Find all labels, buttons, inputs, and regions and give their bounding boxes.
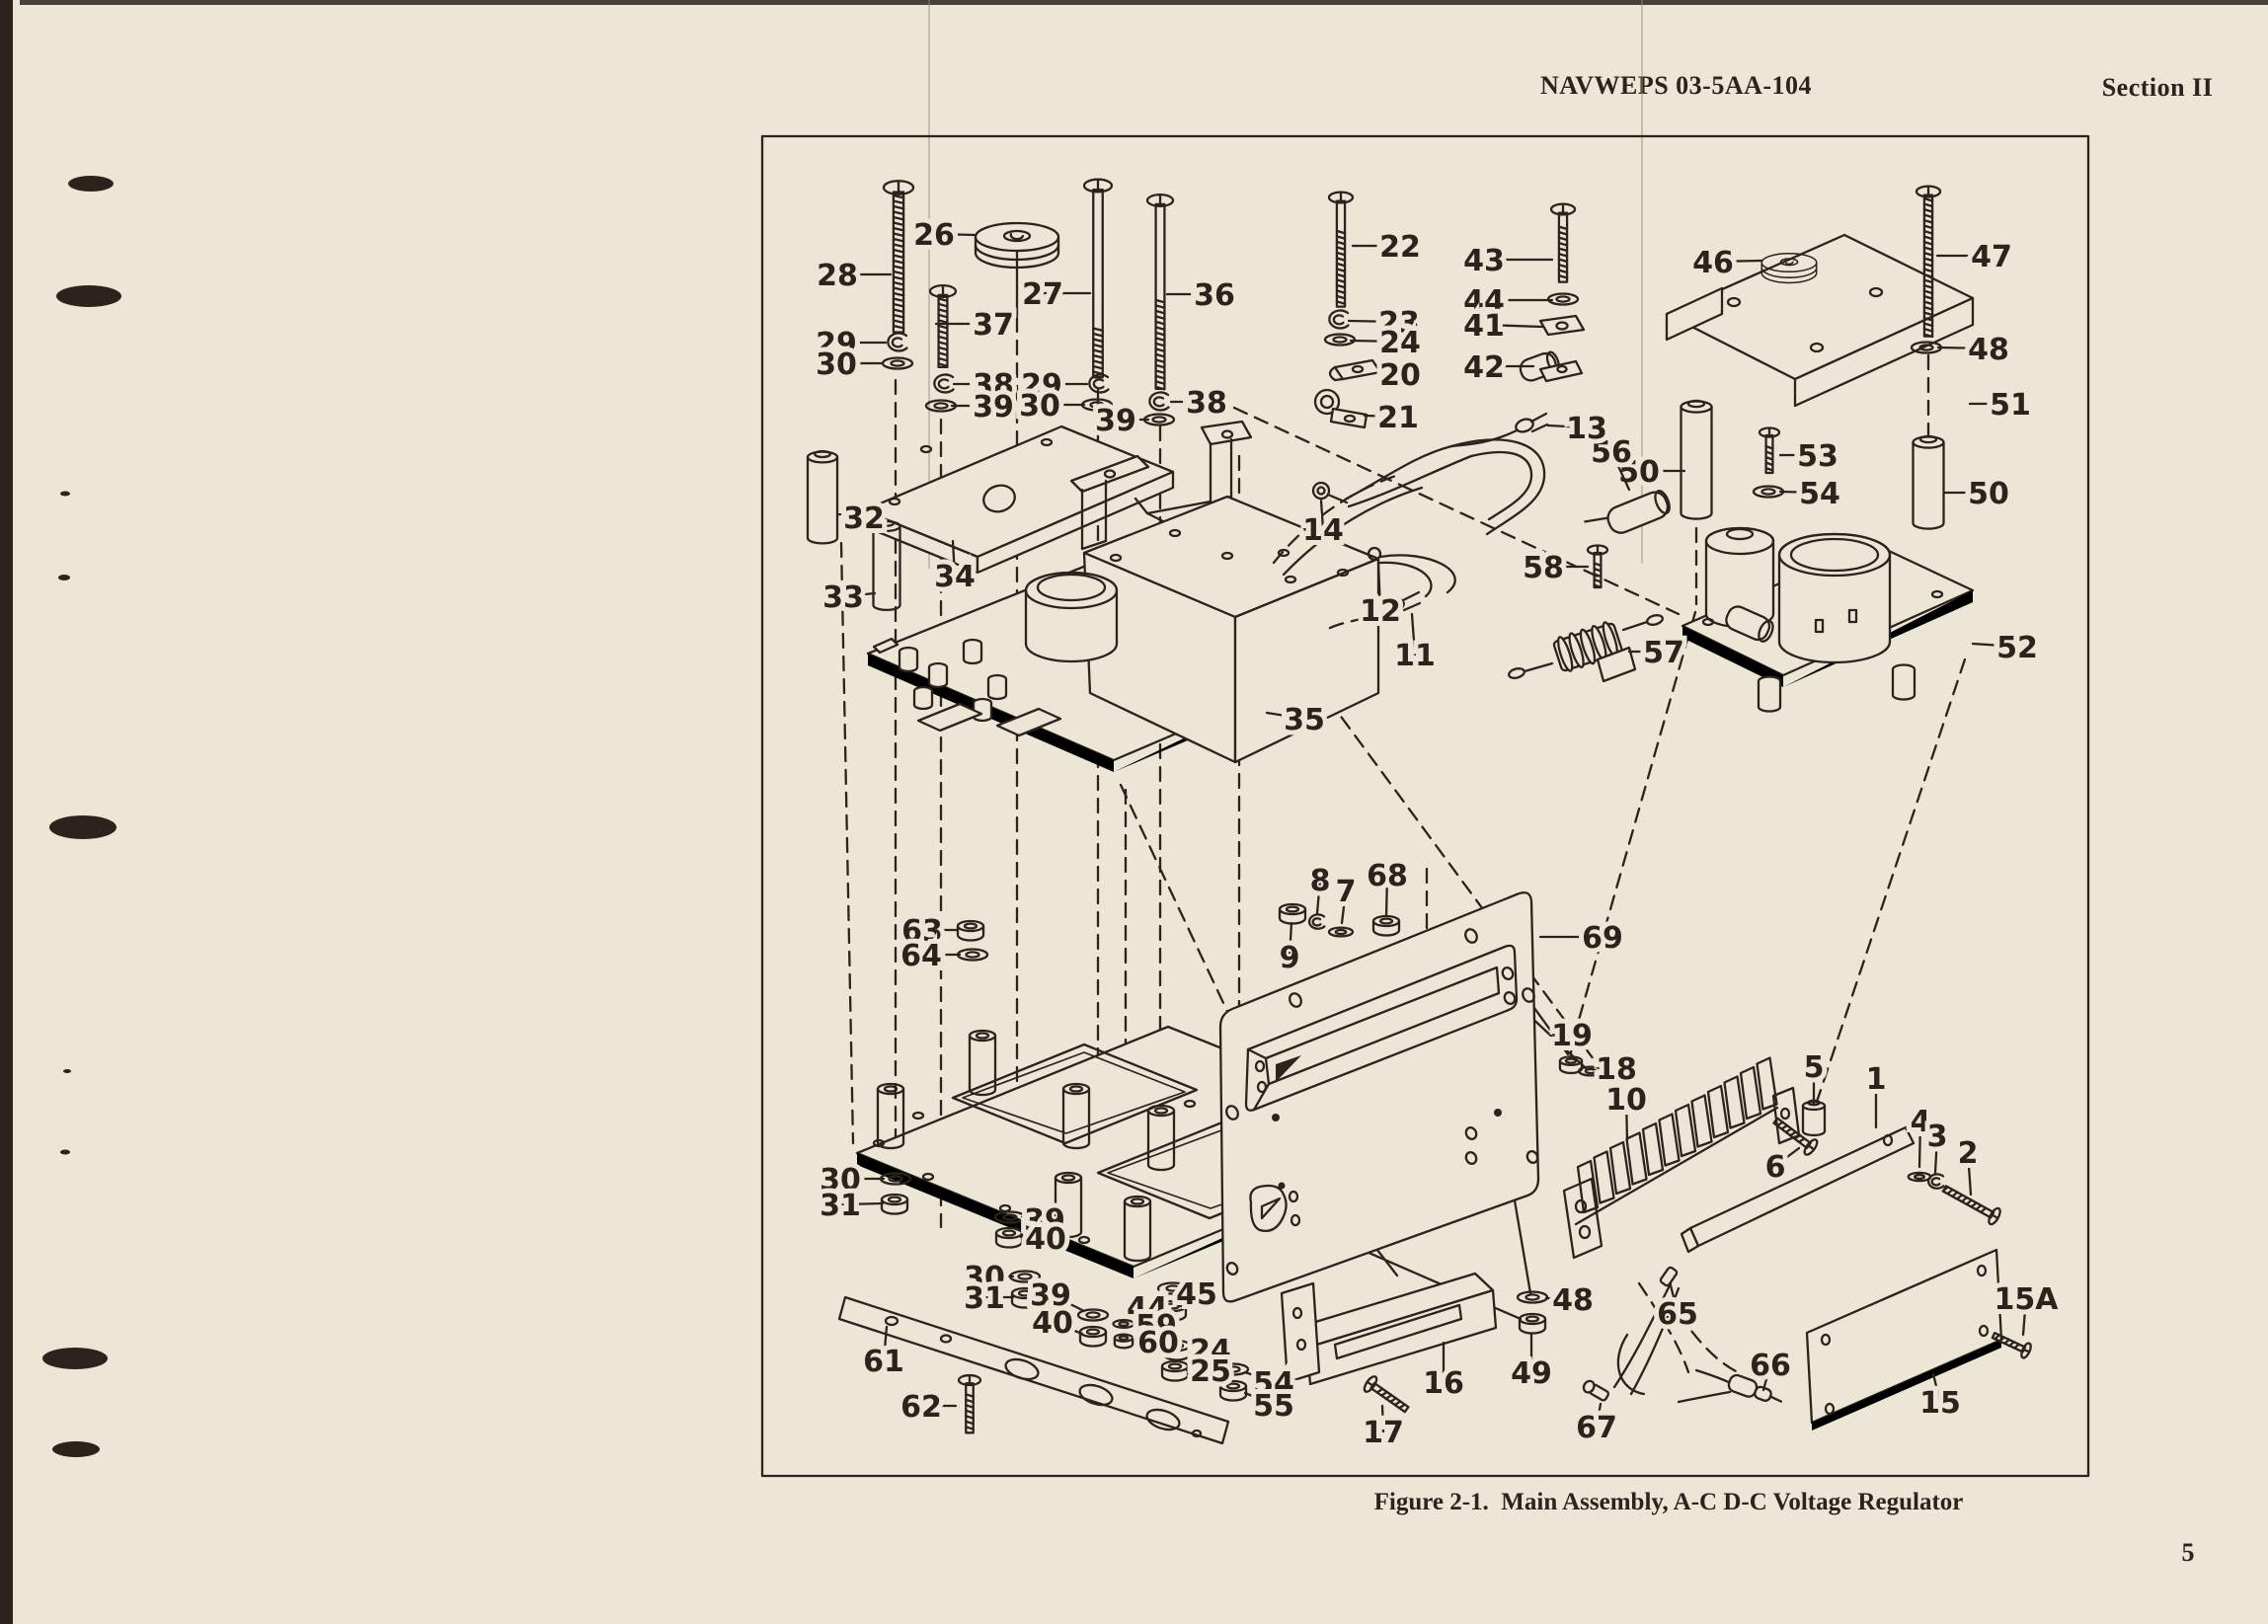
cover-plate-15 — [1807, 1250, 2001, 1431]
callout-label: 12 — [1360, 594, 1401, 629]
callout-label: 14 — [1302, 513, 1344, 548]
callout-label: 57 — [1643, 636, 1684, 670]
washer — [1909, 1173, 1931, 1181]
retaining-ring — [888, 333, 906, 350]
machine-screw — [1760, 428, 1779, 474]
callout-label: 21 — [1377, 401, 1419, 435]
callout-40: 40 — [1032, 1306, 1082, 1341]
washer — [1754, 487, 1783, 498]
callout-label: 20 — [1379, 358, 1421, 393]
callout-label: 5 — [1804, 1050, 1825, 1085]
machine-screw — [1363, 1374, 1412, 1417]
callout-label: 64 — [900, 939, 942, 973]
callout-label: 40 — [1032, 1306, 1073, 1341]
angle-bracket-1 — [1681, 1127, 1914, 1252]
callout-30: 30 — [816, 348, 883, 382]
callout-54: 54 — [1780, 477, 1840, 511]
callout-label: 30 — [816, 348, 857, 382]
callout-label: 1 — [1866, 1062, 1887, 1097]
callout-18: 18 — [1596, 1052, 1637, 1087]
spacer — [808, 451, 837, 543]
callout-13: 13 — [1548, 412, 1607, 446]
callout-label: 13 — [1566, 412, 1607, 446]
callout-40: 40 — [1021, 1222, 1066, 1257]
callout-48: 48 — [1546, 1283, 1594, 1318]
callout-38: 38 — [1171, 386, 1227, 421]
wiring-harness-lower — [1582, 1267, 1784, 1408]
callout-label: 32 — [843, 502, 885, 536]
nut — [1080, 1327, 1106, 1347]
washer — [1518, 1292, 1547, 1303]
callout-label: 33 — [822, 580, 864, 615]
clamp-21 — [1315, 390, 1367, 427]
callout-31: 31 — [820, 1189, 883, 1223]
callout-label: 45 — [1176, 1277, 1217, 1312]
callout-label: 35 — [1284, 703, 1325, 737]
callout-label: 18 — [1596, 1052, 1637, 1087]
callout-label: 36 — [1194, 278, 1235, 313]
callout-14: 14 — [1302, 501, 1344, 548]
callout-57: 57 — [1629, 636, 1684, 670]
callout-47: 47 — [1937, 240, 2012, 274]
callout-7: 7 — [1336, 875, 1357, 923]
relay-assembly-52 — [1682, 528, 1973, 712]
callout-label: 26 — [913, 218, 955, 253]
callout-label: 69 — [1582, 921, 1623, 956]
nut — [1560, 1056, 1582, 1073]
callout-label: 66 — [1750, 1349, 1791, 1383]
callout-label: 60 — [1137, 1326, 1179, 1360]
callout-label: 61 — [863, 1345, 904, 1379]
callout-62: 62 — [900, 1390, 956, 1425]
callout-55: 55 — [1245, 1389, 1294, 1424]
callout-17: 17 — [1363, 1406, 1404, 1450]
callout-48: 48 — [1938, 333, 2009, 367]
callout-19: 19 — [1551, 1019, 1593, 1055]
callout-53: 53 — [1780, 439, 1838, 474]
callout-46: 46 — [1692, 246, 1761, 280]
callout-label: 50 — [1968, 477, 2009, 511]
spacer — [1803, 1101, 1825, 1135]
callout-32: 32 — [839, 502, 885, 536]
callout-20: 20 — [1378, 358, 1421, 393]
retaining-ring — [1928, 1174, 1943, 1188]
callout-3: 3 — [1927, 1120, 1948, 1173]
resistor-57 — [1508, 614, 1664, 681]
callout-label: 38 — [1186, 386, 1227, 421]
front-panel-69 — [1220, 892, 1539, 1301]
retaining-ring — [934, 374, 953, 392]
callout-label: 25 — [1190, 1354, 1231, 1389]
callout-label: 55 — [1253, 1389, 1294, 1424]
callout-26: 26 — [913, 218, 976, 253]
callout-50: 50 — [1945, 477, 2009, 511]
callout-label: 22 — [1379, 230, 1421, 265]
callout-15: 15 — [1919, 1374, 1961, 1421]
callout-label: 48 — [1968, 333, 2009, 367]
callout-label: 54 — [1799, 477, 1840, 511]
part-callouts: 2628372736293038392930383922232420214344… — [816, 218, 2059, 1450]
callout-10: 10 — [1605, 1083, 1647, 1140]
machine-screw — [884, 181, 913, 332]
callout-label: 28 — [817, 259, 858, 293]
callout-label: 30 — [1019, 389, 1060, 424]
nut-plate-41 — [1540, 316, 1584, 335]
callout-label: 2 — [1958, 1136, 1979, 1171]
callout-52: 52 — [1973, 631, 2038, 665]
callout-5: 5 — [1804, 1050, 1825, 1104]
callout-33: 33 — [822, 580, 875, 615]
callout-label: 24 — [1379, 326, 1421, 360]
washer — [958, 950, 987, 961]
callout-label: 37 — [973, 308, 1014, 343]
callout-label: 16 — [1423, 1366, 1464, 1401]
machine-screw — [930, 285, 956, 367]
retaining-ring — [1149, 392, 1168, 410]
callout-label: 6 — [1765, 1150, 1786, 1185]
machine-screw — [1329, 193, 1353, 307]
exploded-view-diagram: 2628372736293038392930383922232420214344… — [0, 0, 2268, 1624]
machine-screw — [1551, 204, 1575, 282]
callout-label: 43 — [1463, 244, 1505, 278]
callout-49: 49 — [1511, 1335, 1552, 1391]
callout-label: 41 — [1463, 309, 1505, 344]
callout-label: 51 — [1990, 388, 2031, 423]
nut — [882, 1195, 907, 1214]
callout-label: 68 — [1367, 859, 1408, 893]
callout-9: 9 — [1280, 923, 1300, 975]
callout-21: 21 — [1365, 401, 1419, 435]
callout-39: 39 — [952, 390, 1014, 425]
nut — [1520, 1314, 1545, 1334]
nut — [958, 921, 983, 941]
nut — [1280, 904, 1305, 924]
callout-label: 19 — [1551, 1019, 1593, 1053]
nut — [1115, 1335, 1133, 1349]
callout-68: 68 — [1367, 859, 1408, 916]
callout-label: 65 — [1657, 1297, 1698, 1332]
clamp-20 — [1330, 360, 1380, 380]
callout-label: 31 — [964, 1281, 1005, 1316]
callout-31: 31 — [964, 1281, 1013, 1316]
machine-screw — [959, 1375, 980, 1432]
locknut — [1373, 916, 1399, 936]
callout-36: 36 — [1167, 278, 1235, 313]
callout-41: 41 — [1463, 309, 1542, 344]
callout-label: 8 — [1310, 864, 1331, 898]
machine-screw — [1147, 194, 1173, 389]
callout-label: 7 — [1336, 875, 1357, 909]
callout-16: 16 — [1423, 1343, 1464, 1401]
callout-22: 22 — [1353, 230, 1421, 265]
callout-label: 62 — [900, 1390, 942, 1425]
spacer — [1681, 401, 1712, 519]
callout-label: 46 — [1692, 246, 1734, 280]
spacer — [1914, 436, 1944, 529]
callout-label: 47 — [1971, 240, 2012, 274]
callout-label: 53 — [1797, 439, 1838, 474]
callout-label: 15 — [1919, 1386, 1961, 1421]
callout-label: 40 — [1025, 1222, 1066, 1257]
callout-label: 17 — [1363, 1416, 1404, 1450]
callout-label: 52 — [1996, 631, 2038, 665]
callout-label: 48 — [1552, 1283, 1594, 1318]
callout-label: 9 — [1280, 941, 1300, 975]
callout-28: 28 — [817, 259, 891, 293]
callout-25: 25 — [1187, 1354, 1231, 1389]
machine-screw — [1588, 546, 1607, 588]
callout-43: 43 — [1463, 244, 1552, 278]
callout-30: 30 — [1019, 389, 1084, 424]
callout-67: 67 — [1576, 1404, 1617, 1445]
terminal-strip-10 — [1564, 1058, 1799, 1259]
callout-39: 39 — [1095, 404, 1148, 438]
manual-page: { "page": { "header_left": "NAVWEPS 03-5… — [0, 0, 2268, 1624]
callout-24: 24 — [1351, 326, 1421, 360]
callout-label: 49 — [1511, 1356, 1552, 1391]
callout-1: 1 — [1866, 1062, 1887, 1127]
punch-holes — [42, 176, 121, 1457]
callout-15A: 15A — [1994, 1282, 2060, 1335]
callout-58: 58 — [1523, 551, 1588, 585]
washer — [883, 358, 912, 369]
callout-label: 31 — [820, 1189, 861, 1223]
washer — [1329, 928, 1353, 937]
callout-label: 42 — [1463, 350, 1505, 385]
callout-8: 8 — [1310, 864, 1331, 913]
callout-64: 64 — [900, 939, 960, 973]
callout-label: 39 — [973, 390, 1014, 425]
callout-label: 3 — [1927, 1120, 1948, 1154]
callout-69: 69 — [1540, 921, 1623, 956]
callout-60: 60 — [1135, 1326, 1179, 1360]
callout-label: 27 — [1022, 277, 1063, 312]
capacitor-56 — [1585, 488, 1674, 544]
nut — [1162, 1361, 1188, 1381]
callout-27: 27 — [1022, 277, 1090, 312]
callout-label: 10 — [1605, 1083, 1647, 1118]
callout-label: 67 — [1576, 1411, 1617, 1445]
callout-label: 11 — [1394, 639, 1436, 673]
callout-label: 34 — [934, 560, 976, 594]
retaining-ring — [1309, 914, 1324, 928]
terminal-67 — [1582, 1379, 1610, 1402]
callout-label: 15A — [1994, 1282, 2060, 1317]
callout-45: 45 — [1176, 1277, 1217, 1312]
retaining-ring — [1329, 310, 1348, 328]
callout-2: 2 — [1958, 1136, 1979, 1195]
callout-label: 39 — [1095, 404, 1136, 438]
callout-label: 58 — [1523, 551, 1564, 585]
machine-screw — [1084, 180, 1112, 378]
callout-51: 51 — [1970, 388, 2031, 423]
